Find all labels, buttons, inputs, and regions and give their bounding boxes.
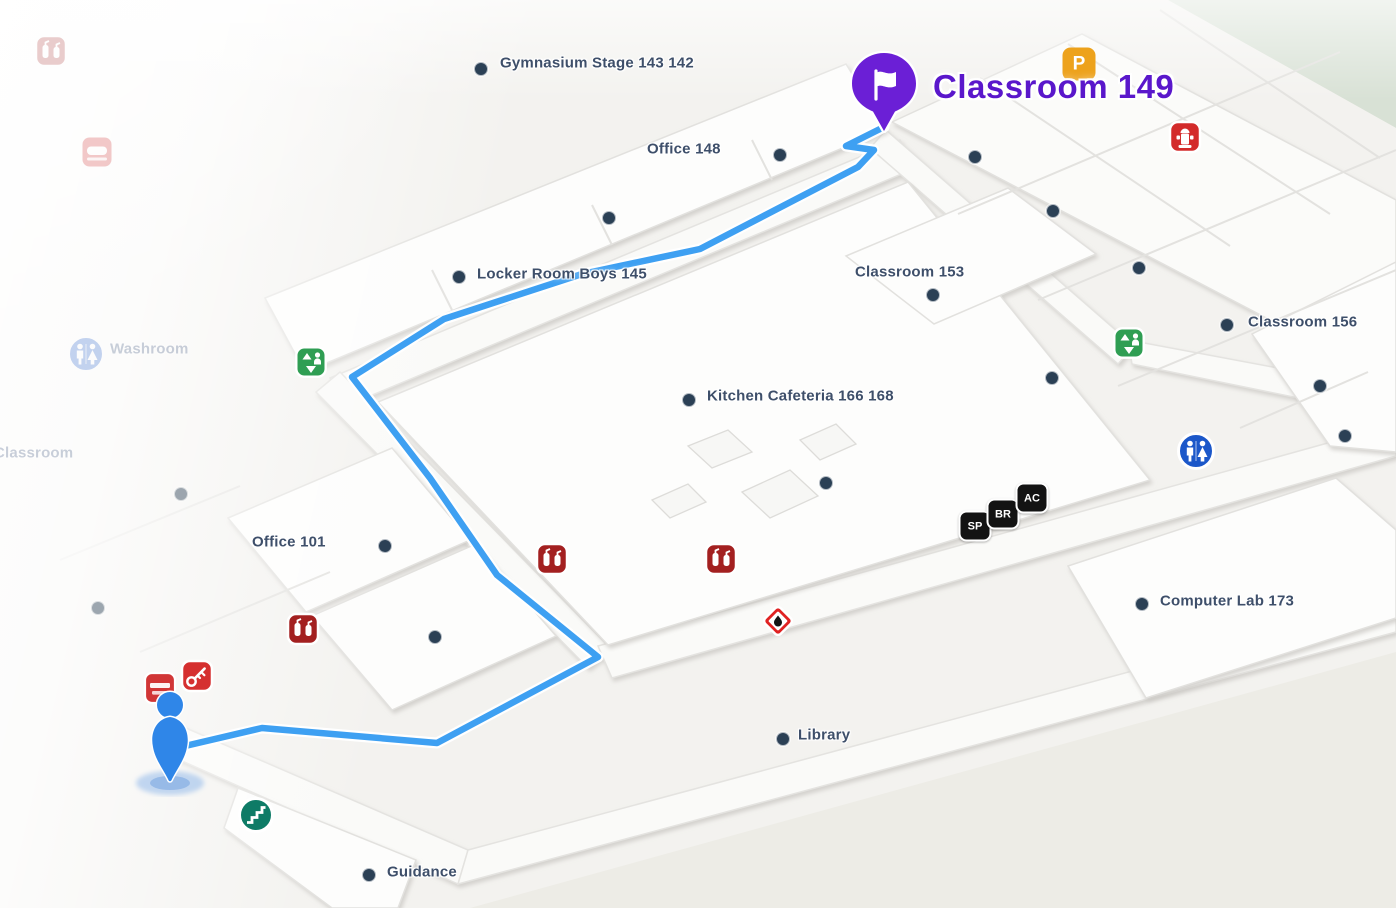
elevator-icon[interactable] — [1113, 327, 1146, 360]
indoor-map-canvas[interactable]: Gymnasium Stage 143 142Office 148Locker … — [0, 0, 1396, 908]
elevator-icon[interactable] — [295, 346, 328, 379]
stairs-icon[interactable] — [237, 796, 275, 834]
current-location-marker — [125, 687, 215, 802]
fire-extinguisher-cabinet-icon[interactable] — [704, 542, 738, 576]
destination-label: Classroom 149 — [933, 68, 1174, 106]
fire-extinguisher-cabinet-icon[interactable] — [535, 542, 569, 576]
badge-ac-icon[interactable]: AC — [1016, 483, 1049, 514]
fire-extinguisher-cabinet-icon[interactable] — [286, 612, 320, 646]
washroom-icon[interactable] — [1176, 431, 1216, 471]
fire-extinguisher-cabinet-icon[interactable] — [34, 34, 68, 68]
washroom-icon[interactable] — [66, 334, 106, 374]
fire-hydrant-icon[interactable] — [1168, 120, 1202, 154]
destination-pin[interactable] — [845, 49, 923, 138]
sign-icon[interactable] — [81, 136, 114, 169]
fire-hazard-icon[interactable] — [759, 602, 797, 640]
person-icon — [152, 692, 188, 781]
